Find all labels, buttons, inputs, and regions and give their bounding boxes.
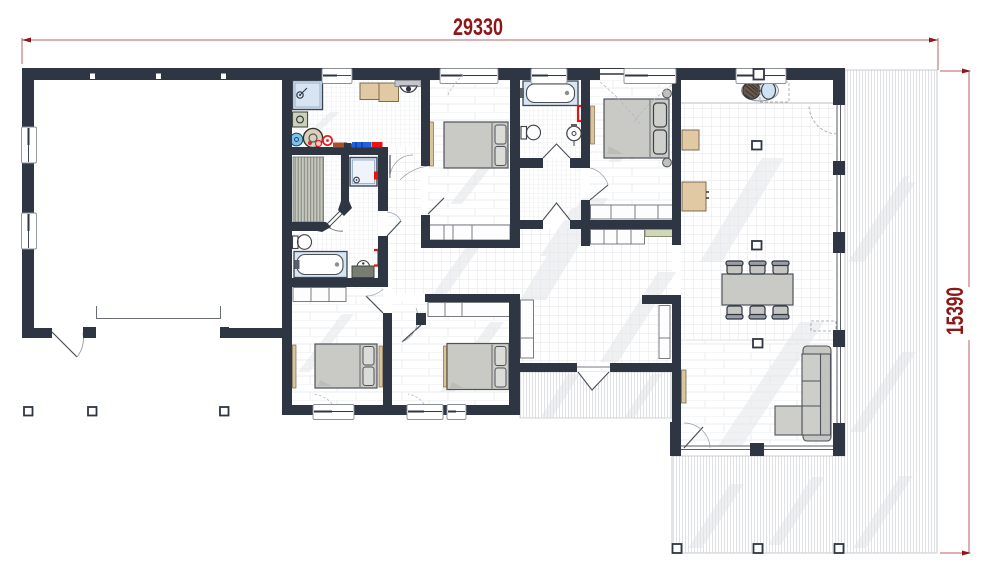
svg-text:15390: 15390: [942, 287, 969, 335]
svg-text:29330: 29330: [453, 14, 503, 41]
